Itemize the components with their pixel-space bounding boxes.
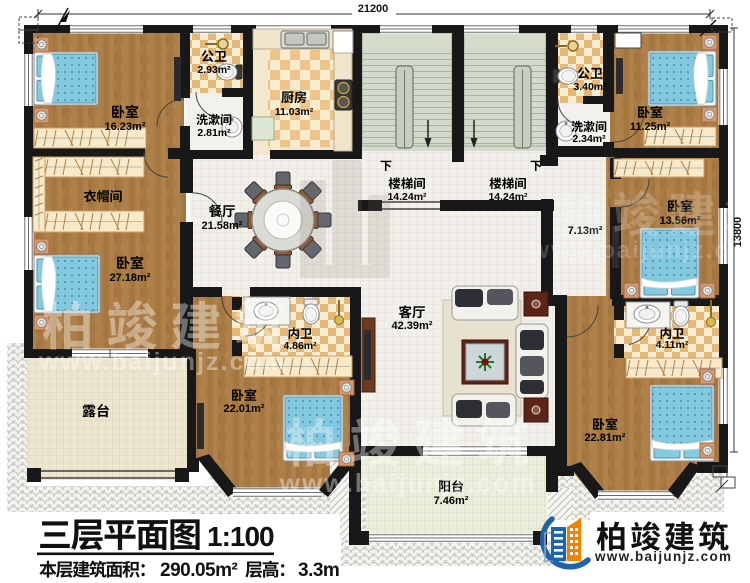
svg-text:16.23m²: 16.23m² <box>105 121 146 133</box>
svg-text:3.40m²: 3.40m² <box>573 81 607 93</box>
svg-text:4.11m²: 4.11m² <box>656 339 689 351</box>
svg-text:42.39m²: 42.39m² <box>392 320 433 332</box>
svg-text:14.24m²: 14.24m² <box>488 191 528 203</box>
svg-text:1:100: 1:100 <box>207 521 274 552</box>
svg-text:2.81m²: 2.81m² <box>197 127 231 139</box>
svg-text:www.baijunjz.com: www.baijunjz.com <box>529 237 750 264</box>
svg-text:2.93m²: 2.93m² <box>197 64 231 76</box>
svg-text:www.baijunjz.com: www.baijunjz.com <box>38 348 287 376</box>
svg-text:www.baijunjz.com: www.baijunjz.com <box>279 468 536 498</box>
svg-text:4.86m²: 4.86m² <box>283 340 317 352</box>
svg-text:13800: 13800 <box>732 217 744 248</box>
svg-text:11.03m²: 11.03m² <box>275 106 314 118</box>
svg-text:2.34m²: 2.34m² <box>572 133 606 145</box>
svg-text:27.18m²: 27.18m² <box>110 272 151 284</box>
svg-text:290.05m²: 290.05m² <box>160 560 238 581</box>
svg-text:21200: 21200 <box>358 3 389 15</box>
svg-text:3.3m: 3.3m <box>298 560 339 581</box>
svg-text:14.24m²: 14.24m² <box>387 191 427 203</box>
svg-text:21.58m²: 21.58m² <box>202 220 243 232</box>
svg-text:22.01m²: 22.01m² <box>224 403 265 415</box>
svg-text:11.25m²: 11.25m² <box>630 121 671 133</box>
svg-text:www.baijunjz.com: www.baijunjz.com <box>594 549 732 564</box>
svg-text:22.81m²: 22.81m² <box>585 432 626 444</box>
